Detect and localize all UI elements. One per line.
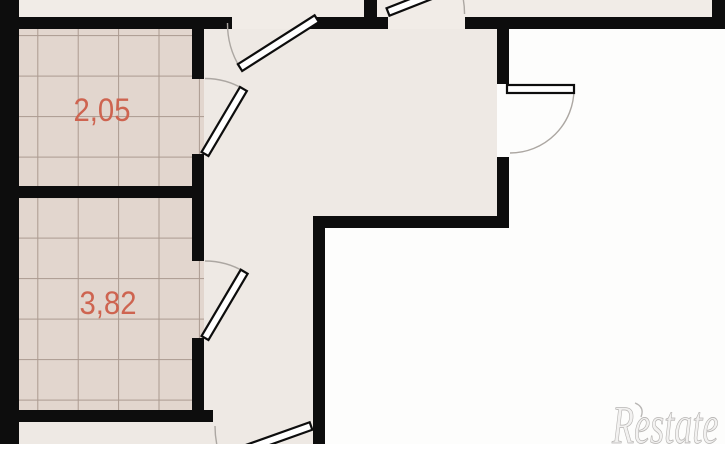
svg-text:3,82: 3,82 — [80, 285, 137, 321]
svg-text:2,05: 2,05 — [74, 92, 131, 128]
svg-text:Restate: Restate — [611, 395, 718, 444]
